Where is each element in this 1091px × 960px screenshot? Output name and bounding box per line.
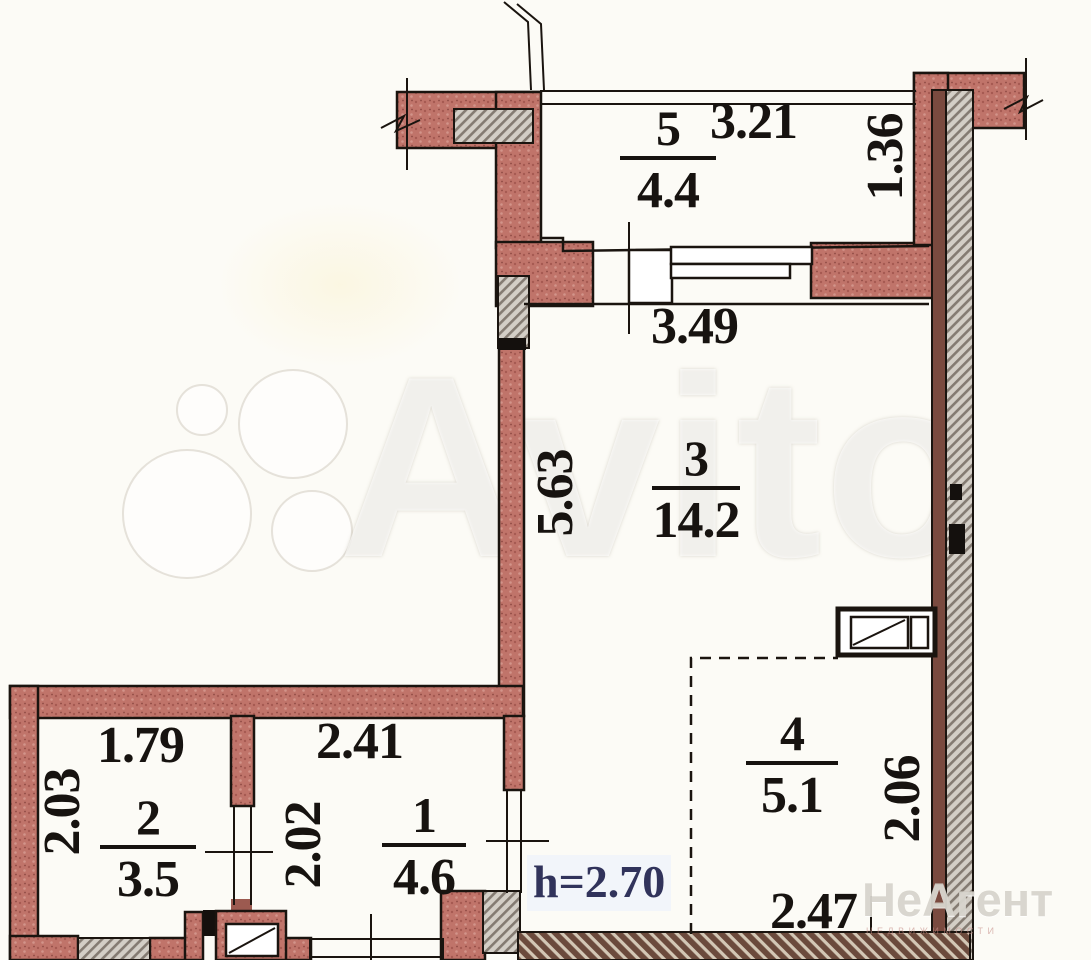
- dimension-balcony-opening: 3.49: [651, 301, 738, 353]
- fraction-bar: [100, 845, 196, 849]
- room-number: 1: [374, 790, 474, 840]
- dimension-text: 5.63: [530, 450, 582, 537]
- dimension-top-right-depth: 1.36: [860, 92, 912, 222]
- balcony-window-inner: [671, 264, 790, 278]
- wall-room1-right: [504, 716, 524, 790]
- wall-rooms12-top: [10, 686, 523, 718]
- room-label-5: 5 4.4: [618, 103, 718, 218]
- lintel-top-left: [454, 109, 533, 143]
- wall-bottom-left-b: [150, 938, 186, 960]
- wall-cap: [498, 338, 526, 350]
- dimension-room2-width: 1.79: [97, 720, 184, 772]
- balcony-door-leaf: [629, 250, 672, 303]
- room-area: 4.6: [374, 851, 474, 905]
- room-area: 14.2: [646, 494, 746, 548]
- right-wall-mark: [949, 524, 965, 554]
- dimension-top-width: 3.21: [710, 96, 797, 148]
- ceiling-height-label: h=2.70: [527, 855, 671, 911]
- wall-bottom-left-a: [10, 936, 78, 960]
- room-label-2: 2 3.5: [98, 792, 198, 907]
- balcony-window-outer: [671, 247, 812, 264]
- pier-gray-bottom: [483, 891, 520, 953]
- room1-bottom-window: [310, 914, 443, 960]
- wall-partition-2-1: [231, 716, 254, 806]
- dimension-text: 2.03: [37, 769, 89, 856]
- right-wall-mark: [950, 484, 962, 500]
- wall-balcony-right: [811, 243, 946, 298]
- vent-shaft: [216, 911, 286, 960]
- dimension-room2-height: 2.03: [37, 747, 89, 877]
- fraction-bar: [620, 156, 716, 160]
- pipe-line: [504, 2, 531, 90]
- dimension-text: 2.02: [278, 802, 330, 889]
- wall-bottom-gray: [78, 938, 150, 960]
- room-label-4: 4 5.1: [742, 708, 842, 823]
- dimension-room1-width: 2.41: [316, 716, 403, 768]
- dimension-text: 2.06: [877, 756, 929, 843]
- room-number: 4: [742, 708, 842, 758]
- room-area: 3.5: [98, 853, 198, 907]
- wall-outer-right-inner-line: [932, 90, 947, 960]
- shaft-left-pier: [185, 912, 203, 960]
- wall-bottom-dark: [518, 932, 970, 960]
- dimension-room4-width: 2.47: [770, 886, 857, 938]
- dimension-room1-height: 2.02: [278, 780, 330, 910]
- dimension-text: 1.36: [860, 114, 912, 201]
- room4-window-unit: [838, 609, 935, 655]
- room-label-3: 3 14.2: [646, 433, 746, 548]
- lintel-balcony: [498, 276, 529, 348]
- fraction-bar: [652, 486, 740, 490]
- dimension-room4-height: 2.06: [877, 734, 929, 864]
- room-area: 5.1: [742, 769, 842, 823]
- dimension-room3-height: 5.63: [530, 428, 582, 558]
- fraction-bar: [746, 761, 838, 765]
- room-number: 2: [98, 792, 198, 842]
- room-number: 3: [646, 433, 746, 483]
- room-area: 4.4: [618, 164, 718, 218]
- fraction-bar: [382, 843, 466, 847]
- room-label-1: 1 4.6: [374, 790, 474, 905]
- room-number: 5: [618, 103, 718, 153]
- floor-plan: Avito: [0, 0, 1091, 960]
- riser-pipe: [504, 2, 544, 90]
- window-divider: [911, 617, 928, 648]
- wall-room3-left: [499, 346, 524, 716]
